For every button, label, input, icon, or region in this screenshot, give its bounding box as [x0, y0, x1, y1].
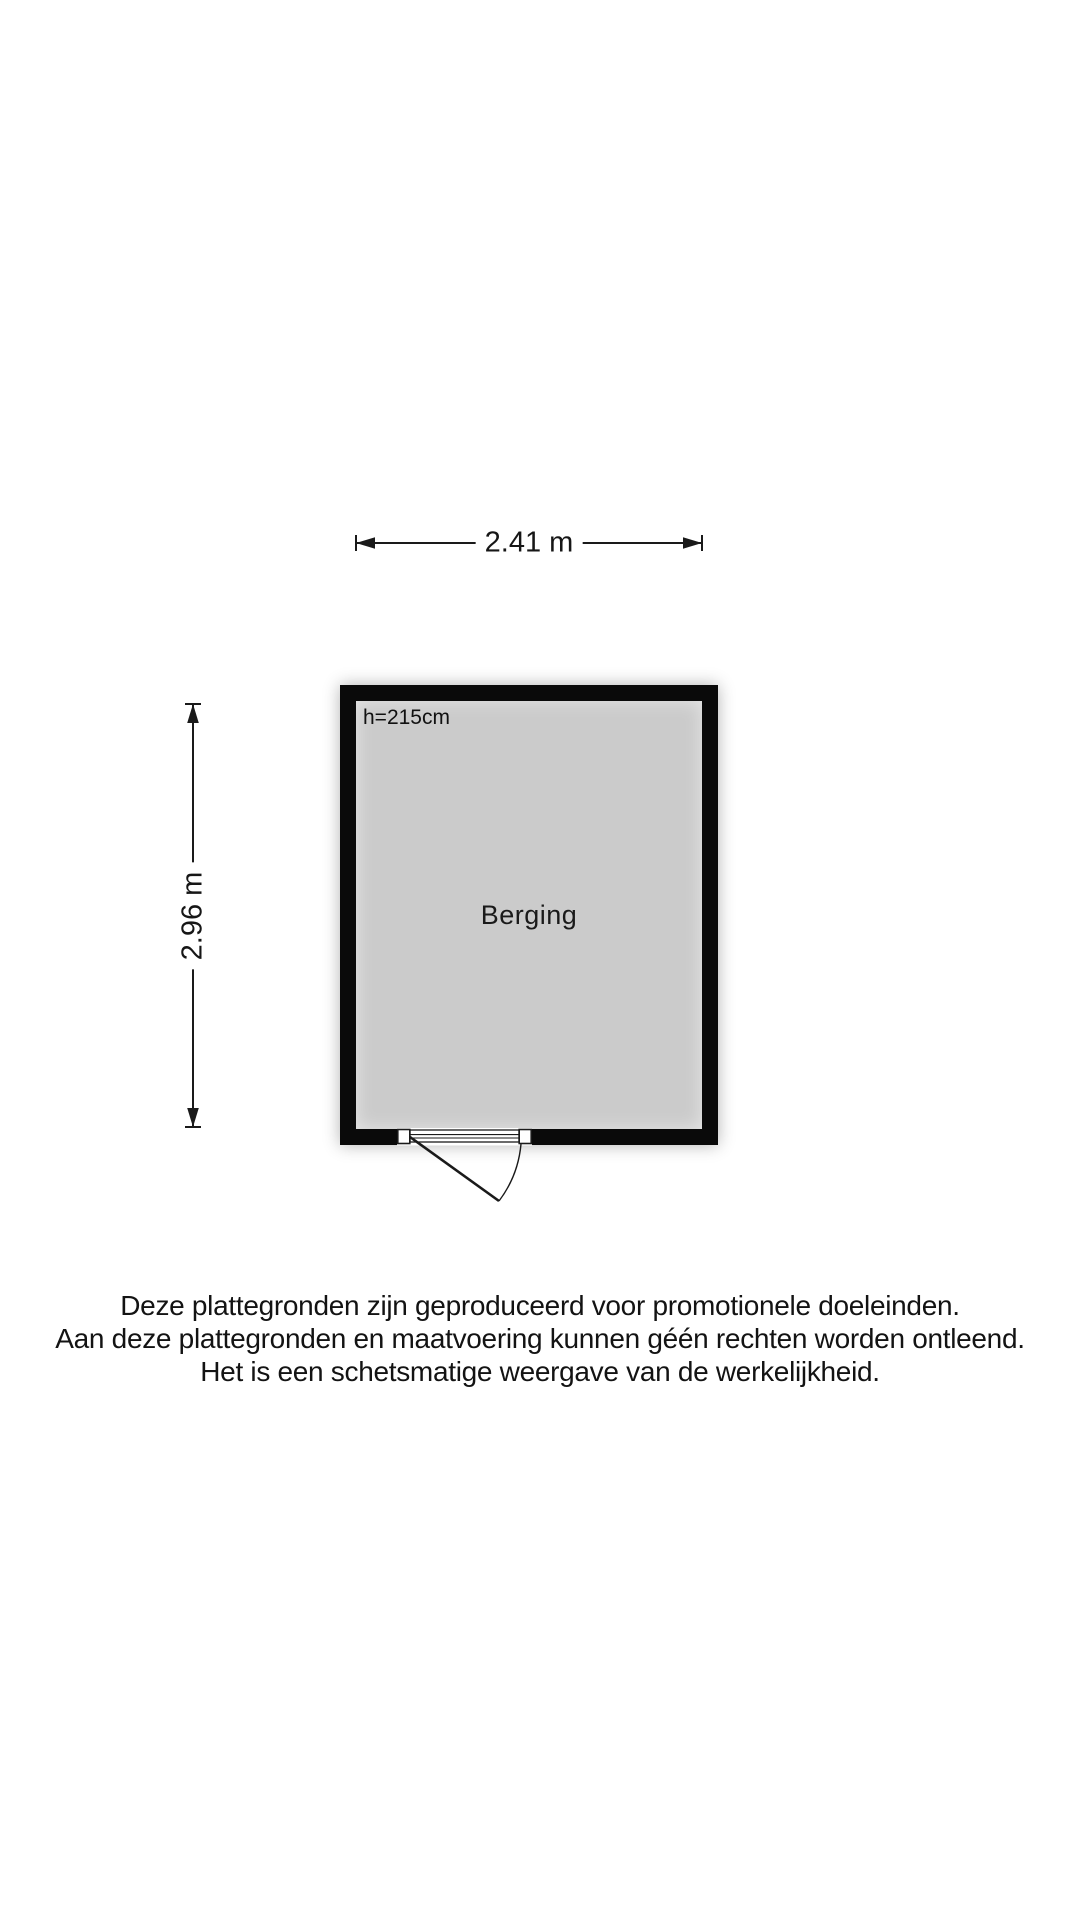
- room-berging: h=215cm Berging: [340, 685, 718, 1145]
- disclaimer-line-3: Het is een schetsmatige weergave van de …: [0, 1355, 1080, 1388]
- floorplan-canvas: h=215cm Berging: [0, 0, 1080, 1920]
- door-leaf: [410, 1137, 499, 1201]
- room-name-label: Berging: [356, 701, 702, 1129]
- width-dimension-label: 2.41 m: [476, 526, 583, 561]
- disclaimer-line-1: Deze plattegronden zijn geproduceerd voo…: [0, 1289, 1080, 1322]
- height-dimension-label: 2.96 m: [176, 863, 211, 970]
- disclaimer-line-2: Aan deze plattegronden en maatvoering ku…: [0, 1322, 1080, 1355]
- door-swing-arc: [499, 1144, 521, 1201]
- disclaimer-text: Deze plattegronden zijn geproduceerd voo…: [0, 1289, 1080, 1388]
